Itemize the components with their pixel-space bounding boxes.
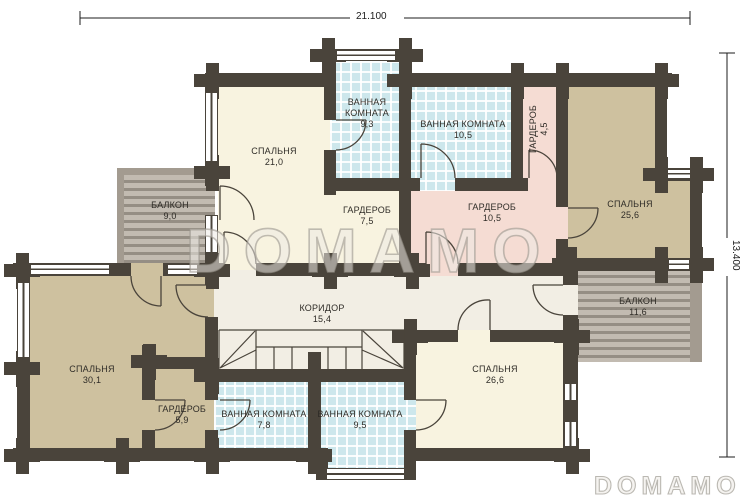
room-label-wardrobe-7-5: ГАРДЕРОБ7,5 [327, 205, 407, 227]
room-label-bedroom-21: СПАЛЬНЯ21,0 [234, 146, 314, 168]
staircase [219, 330, 404, 369]
floor-plan: 21.100 13.400 СПАЛЬНЯ21,0 ВАННАЯ КОМНАТА… [0, 0, 745, 504]
room-label-corridor: КОРИДОР15,4 [282, 303, 362, 325]
room-label-wardrobe-10-5: ГАРДЕРОБ10,5 [452, 202, 532, 224]
room-label-wardrobe-5-9: ГАРДЕРОБ5,9 [142, 404, 222, 426]
room-label-bathroom-9-3: ВАННАЯ КОМНАТА9,3 [339, 97, 395, 130]
room-label-bedroom-26-6: СПАЛЬНЯ26,6 [455, 364, 535, 386]
dimension-height-label: 13.400 [730, 237, 741, 274]
room-label-bedroom-25-6: СПАЛЬНЯ25,6 [590, 199, 670, 221]
room-label-bathroom-9-5: ВАННАЯ КОМНАТА9,5 [310, 409, 410, 431]
dimension-lines [80, 11, 735, 457]
room-label-bedroom-30-1: СПАЛЬНЯ30,1 [52, 364, 132, 386]
room-label-wardrobe-4-5: ГАРДЕРОБ4,5 [528, 102, 550, 156]
room-label-bathroom-10-5: ВАННАЯ КОМНАТА10,5 [413, 119, 513, 141]
room-label-balcony-11-6: БАЛКОН11,6 [598, 296, 678, 318]
room-label-balcony-9-0: БАЛКОН9,0 [130, 200, 210, 222]
dimension-width-label: 21.100 [353, 11, 390, 22]
room-label-bathroom-7-8: ВАННАЯ КОМНАТА7,8 [214, 409, 314, 431]
